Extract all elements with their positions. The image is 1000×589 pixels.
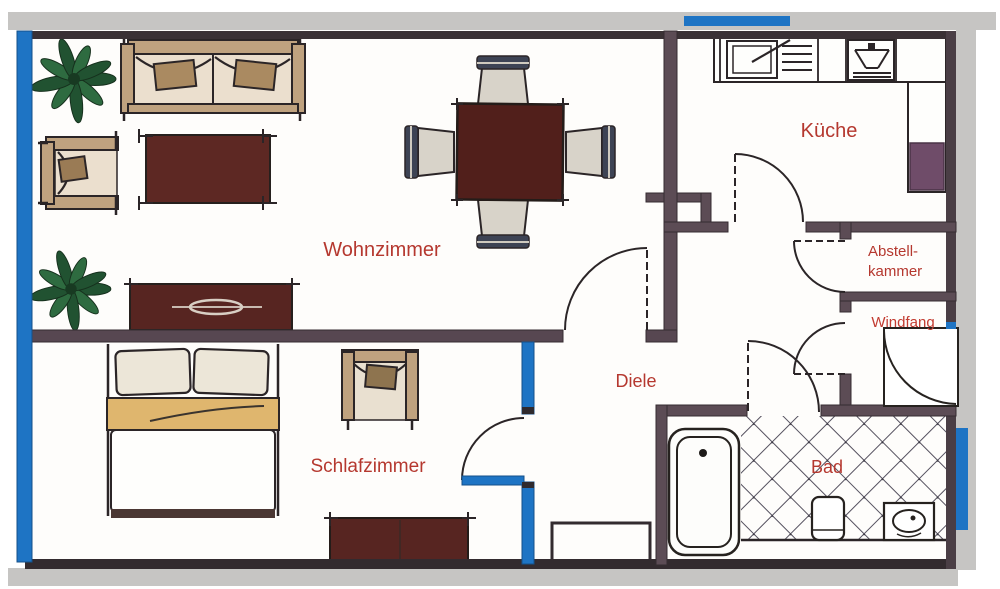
wall-livingroom-hall <box>646 330 677 342</box>
dining-chair-icon <box>566 126 615 178</box>
wall-kitchen-south-right <box>806 222 956 232</box>
kueche-label: Küche <box>801 120 858 142</box>
wohnzimmer-label: Wohnzimmer <box>323 239 441 261</box>
wall-livingroom-kitchen <box>664 31 677 342</box>
dining-chair-icon <box>477 200 529 248</box>
diele-label: Diele <box>615 371 656 391</box>
wall-top <box>25 31 956 39</box>
abstellkammer-label-line2: kammer <box>868 263 922 280</box>
schlafzimmer-label: Schlafzimmer <box>310 456 426 477</box>
wall-bath-north-left <box>656 405 747 416</box>
dresser-icon <box>324 512 476 563</box>
bad-label: Bad <box>811 457 843 477</box>
dining-chair-icon <box>405 126 454 178</box>
washbasin-icon <box>884 503 934 540</box>
blue-door-panel <box>462 476 524 485</box>
blue-wall-bedroom-upper <box>522 342 534 414</box>
wall-storage-left-a <box>840 222 851 239</box>
wall-livingroom-bedroom <box>25 330 563 342</box>
toilet-icon <box>812 497 844 540</box>
blue-wall-left <box>17 31 32 562</box>
door-jamb <box>522 407 534 414</box>
double-bed-icon <box>107 344 279 518</box>
wall-storage-vestibule <box>840 292 956 301</box>
wall-bottom <box>25 559 956 569</box>
abstellkammer-label-line1: Abstell- <box>868 243 918 260</box>
rug-icon <box>138 129 277 210</box>
door-jamb <box>522 482 534 488</box>
armchair-icon <box>342 350 418 430</box>
armchair-icon <box>38 131 118 215</box>
blue-bar-kitchen-top <box>684 16 790 26</box>
appliance-block <box>910 143 944 190</box>
bathtub-icon <box>669 429 739 555</box>
floorplan-page: Wohnzimmer Küche Schlafzimmer Diele Bad … <box>0 0 1000 589</box>
blue-wall-bedroom-lower <box>522 482 534 564</box>
blue-wall-bath-right <box>956 428 968 530</box>
dining-table-icon <box>451 98 569 206</box>
sideboard-icon <box>124 278 300 330</box>
blue-tick-vestibule <box>946 322 956 329</box>
wall-kitchen-south-left <box>664 222 728 232</box>
floorplan-svg: Wohnzimmer Küche Schlafzimmer Diele Bad … <box>0 0 1000 589</box>
wall-bath-left <box>656 405 667 565</box>
entrance-door-swing-icon <box>884 328 958 406</box>
sofa-icon <box>121 36 305 121</box>
dining-chair-icon <box>477 56 529 104</box>
windfang-label: Windfang <box>871 314 934 331</box>
